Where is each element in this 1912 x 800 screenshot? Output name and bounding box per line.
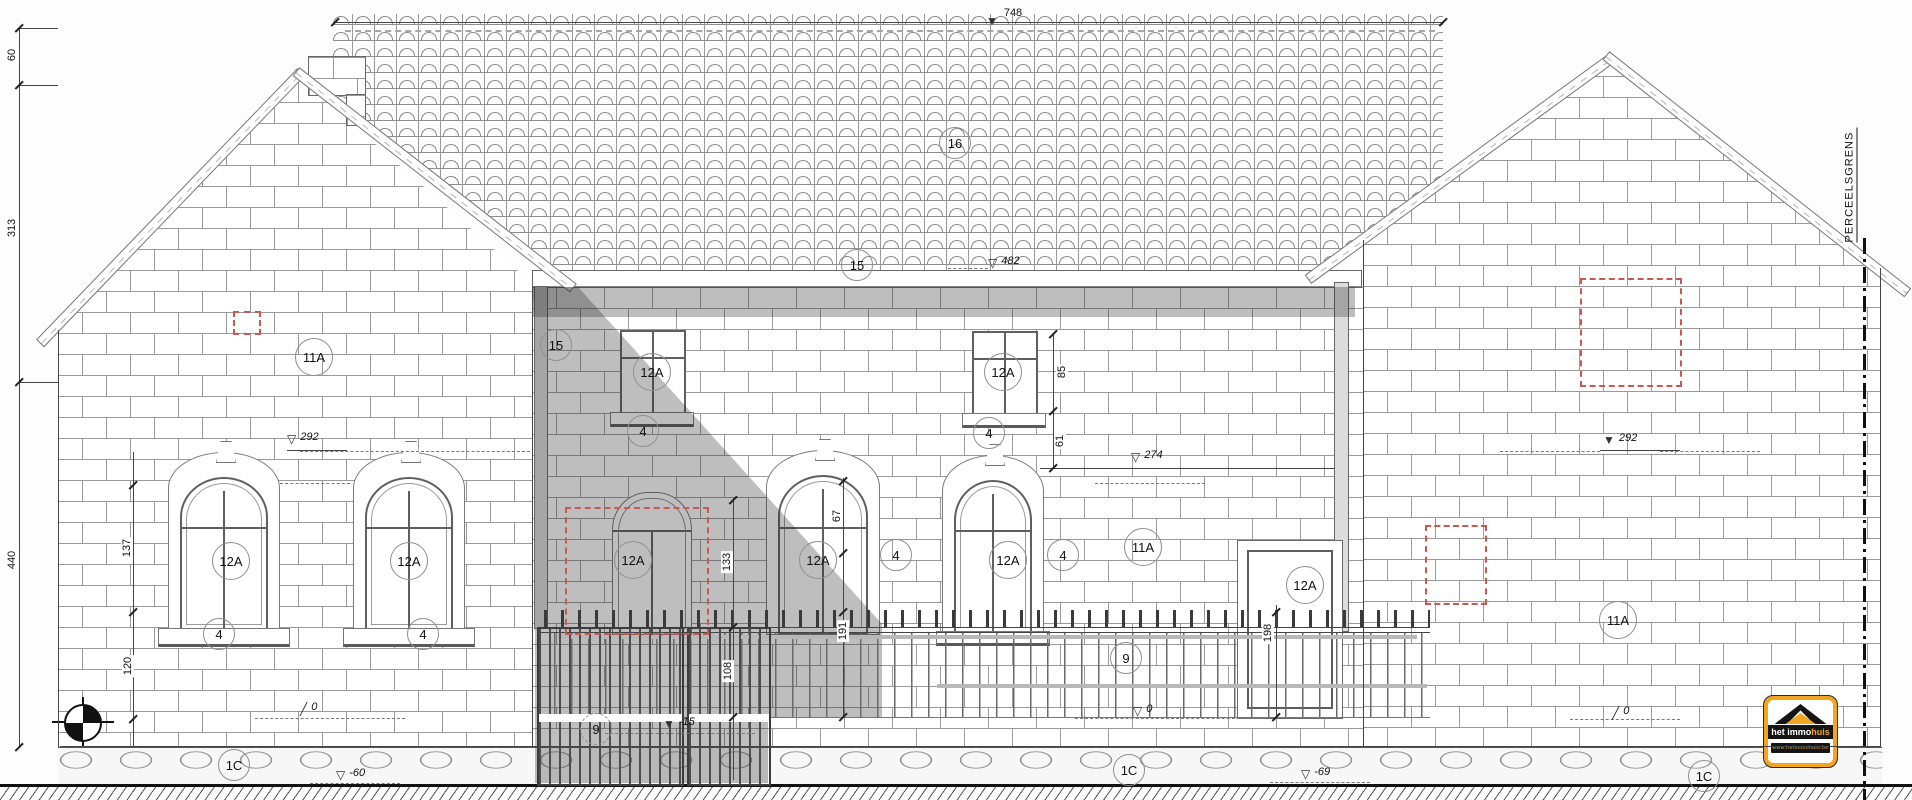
- gate-leaf-wide: [537, 627, 684, 786]
- benchmark-symbol: [64, 703, 102, 743]
- ground-hatch: [0, 787, 1912, 800]
- logo-url-text: www.hetimmohuis.be: [1771, 743, 1831, 753]
- roof-ridge-line: [345, 30, 1435, 32]
- dim-tick: [15, 743, 24, 752]
- elevation-drawing: PERCEELSGRENS het immohuis www.hetimmohu…: [0, 0, 1912, 800]
- dim-label-440: 440: [6, 549, 18, 571]
- gate-leaf-narrow: [687, 627, 771, 786]
- sill-left-1: [158, 628, 290, 647]
- eaves-shadow-band: [532, 287, 1355, 317]
- boundary-label: PERCEELSGRENS: [1844, 128, 1858, 243]
- sill-left-2: [343, 628, 475, 647]
- dim-line: [19, 85, 58, 86]
- window-left-2: [353, 452, 465, 632]
- dim-label-60: 60: [6, 47, 18, 63]
- dim-label-313: 313: [6, 217, 18, 239]
- boundary-line: [1863, 238, 1866, 800]
- dim-tick: [15, 378, 24, 387]
- dim-line: [19, 382, 58, 383]
- dim-line: [1880, 268, 1881, 747]
- dim-line: [19, 28, 20, 747]
- dim-tick: [15, 81, 24, 90]
- window-upper-2: [972, 331, 1038, 417]
- dim-line: [19, 28, 58, 29]
- logo-brand-text: het immohuis: [1768, 725, 1833, 739]
- dim-tick: [15, 24, 24, 33]
- window-left-1: [168, 452, 280, 632]
- sill-upper-2: [962, 413, 1046, 428]
- gutter: [532, 270, 1362, 288]
- foundation-rubble: [58, 747, 1882, 785]
- window-center-2: [942, 455, 1044, 635]
- logo-hetimmohuis: het immohuis www.hetimmohuis.be: [1763, 695, 1838, 768]
